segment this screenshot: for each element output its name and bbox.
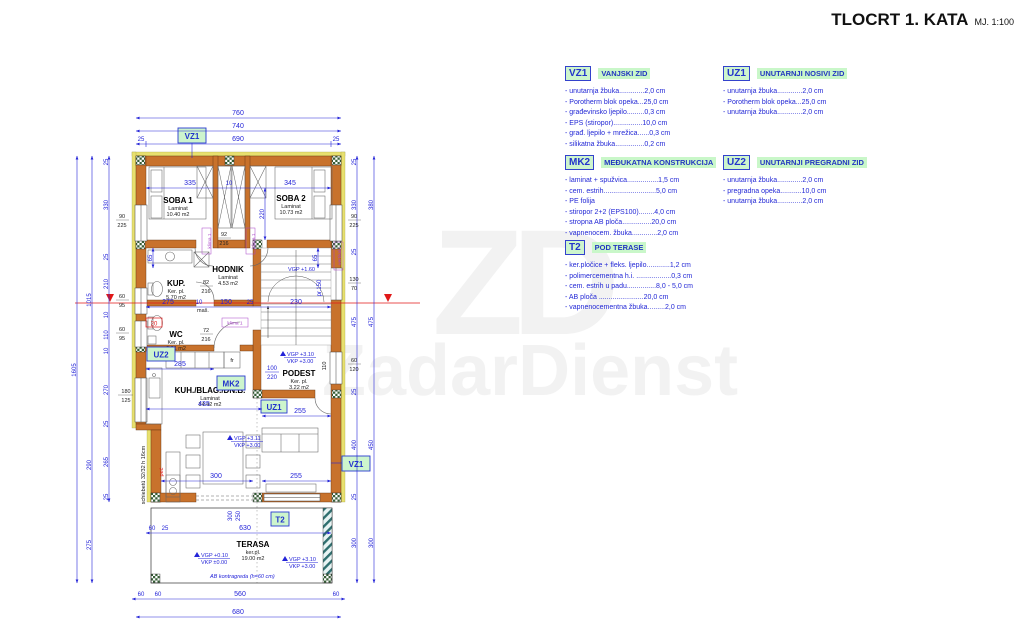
legend-line: - vapnenocem. žbuka.............2,0 cm — [565, 229, 717, 240]
legend-line: - PE folija — [565, 197, 717, 208]
legend-line: - cem. estrih u padu...............8,0 -… — [565, 282, 717, 293]
dim: 10 — [196, 300, 203, 306]
level-vkp300: VKP +3.00 — [289, 564, 315, 570]
dim: 25 — [352, 248, 358, 255]
window-dim: 60 — [119, 327, 125, 333]
room-name-kup: KUP. — [167, 279, 185, 288]
window-dim: 95 — [119, 336, 125, 342]
dim: 300 — [228, 510, 234, 521]
legend-title-uz1: UNUTARNJI NOSIVI ZID — [757, 68, 847, 79]
room-name-soba2: SOBA 2 — [276, 194, 306, 203]
room-name-terasa: TERASA — [237, 540, 270, 549]
level-vkp000: VKP ±0.00 — [201, 560, 227, 566]
legend-uz1: UZ1UNUTARNJI NOSIVI ZID - unutarnja žbuk… — [723, 66, 875, 119]
level-vkp300: VKP +3.00 — [287, 359, 313, 365]
legend-line: - polimercementna h.i. .................… — [565, 272, 717, 283]
dim: 10 — [226, 181, 233, 187]
legend-line: - građevinsko ljepilo.........0,3 cm — [565, 108, 717, 119]
dim: 60 — [138, 592, 145, 598]
dim: 300 — [369, 537, 375, 548]
dim: 275 — [87, 539, 93, 550]
dim: 220 — [267, 375, 278, 381]
level-vgp310: VGP +3.10 — [289, 557, 316, 563]
dim: 25 — [352, 493, 358, 500]
window-dim: 60 — [351, 358, 357, 364]
room-area: 10.73 m2 — [280, 210, 303, 216]
room-area: 4.53 m2 — [218, 281, 238, 287]
klima-label: klima 1 — [251, 233, 257, 249]
marker-uz1: UZ1 — [266, 403, 282, 412]
room-area: 3.22 m2 — [289, 385, 309, 391]
legend-line: - unutarnja žbuka.............2,0 cm — [723, 108, 875, 119]
dim: 330 — [104, 199, 110, 210]
dim: 60 — [333, 592, 340, 598]
legend-line: - cem. estrih...........................… — [565, 187, 717, 198]
dim: 335 — [184, 180, 196, 187]
legend-mk2: MK2MEĐUKATNA KONSTRUKCIJA - laminat + sp… — [565, 155, 717, 239]
legend-code-t2: T2 — [565, 240, 585, 255]
title-text: TLOCRT 1. KATA — [831, 10, 968, 29]
room-name-hodnik: HODNIK — [212, 265, 244, 274]
terrace-hatch — [323, 508, 332, 574]
dim: 290 — [87, 459, 93, 470]
window-dim: 125 — [121, 398, 130, 404]
window-dim: 90 — [351, 214, 357, 220]
legend-line: - unutarnja žbuka.............2,0 cm — [723, 176, 875, 187]
level-vgp311: VGP +3.11 — [234, 436, 261, 442]
dim: 25 — [247, 300, 254, 306]
stove-label: peć — [159, 467, 165, 476]
dim: 475 — [369, 316, 375, 327]
dim: 265 — [104, 456, 110, 467]
legend-line: - laminat + spužvica................1,5 … — [565, 176, 717, 187]
window-dim: 225 — [349, 223, 358, 229]
dim: 25 — [162, 526, 169, 532]
dim: 220 — [260, 208, 266, 219]
window-dim: 95 — [119, 303, 125, 309]
dim: 345 — [284, 180, 296, 187]
section-mark-label: 20 — [151, 322, 158, 328]
legend-vz1: VZ1VANJSKI ZID - unutarnja žbuka........… — [565, 66, 717, 150]
dim: 210 — [104, 278, 110, 289]
schiebe-note: schiebetü 32/32 h 16cm — [141, 445, 147, 504]
dim: 25 — [104, 158, 110, 165]
dim: 110 — [104, 330, 110, 340]
window-dim: 130 — [349, 277, 358, 283]
dim: 25 — [333, 137, 340, 143]
room-name-wc: WC — [169, 330, 183, 339]
legend-line: - unutarnja žbuka.............2,0 cm — [723, 87, 875, 98]
dim: 285 — [174, 361, 186, 368]
dim: 1605 — [72, 363, 78, 377]
window-dim: 90 — [119, 214, 125, 220]
marker-t2: T2 — [275, 516, 285, 525]
level-vgp010: VGP +0.10 — [201, 553, 228, 559]
dim: 250 — [236, 510, 242, 521]
dim: 25 — [352, 158, 358, 165]
dim: 255 — [290, 473, 302, 480]
dim: 10 — [104, 347, 110, 354]
door-dim: 92 — [221, 232, 227, 238]
title-scale: MJ. 1:100 — [974, 17, 1014, 27]
window-dim: 225 — [117, 223, 126, 229]
dim: 435 — [198, 401, 210, 408]
legend-line: - ker.pločice + fleks. ljepilo..........… — [565, 261, 717, 272]
dim: 300 — [352, 537, 358, 548]
klima-label: klima 1 — [207, 233, 213, 249]
dim: 25 — [138, 137, 145, 143]
washer-label: maš. — [197, 308, 209, 314]
legend-title-mk2: MEĐUKATNA KONSTRUKCIJA — [601, 157, 716, 168]
legend-t2: T2POD TERASE - ker.pločice + fleks. ljep… — [565, 240, 717, 314]
dim: 255 — [294, 408, 306, 415]
door-dim: 216 — [219, 241, 228, 247]
legend-title-uz2: UNUTARNJI PREGRADNI ZID — [757, 157, 867, 168]
dim: 560 — [234, 591, 246, 598]
legend-line: - unutarnja žbuka.............2,0 cm — [565, 87, 717, 98]
dim: 10 — [104, 311, 110, 318]
vertikala-label: vertikala — [337, 247, 343, 265]
dim: 60 — [155, 592, 162, 598]
dim: 25 — [104, 420, 110, 427]
dim: 65 — [313, 254, 319, 261]
level-vkp300: VKP +3.00 — [234, 443, 260, 449]
ab-kontragreda-note: AB kontragreda (h=60 cm) — [209, 574, 275, 580]
room-name-soba1: SOBA 1 — [163, 196, 193, 205]
dim: 450 — [369, 439, 375, 450]
door-dim: 72 — [203, 328, 209, 334]
window-dim: 120 — [349, 367, 358, 373]
dim: 300 — [210, 473, 222, 480]
dim: 25 — [104, 253, 110, 260]
dim: 380 — [369, 199, 375, 210]
window-dim: 60 — [119, 294, 125, 300]
dim: 150 — [220, 299, 232, 306]
dim: 1015 — [87, 293, 93, 307]
dim: 475 — [352, 316, 358, 327]
room-name-podest: PODEST — [283, 369, 316, 378]
drawing-title: TLOCRT 1. KATAMJ. 1:100 — [831, 10, 1014, 30]
legend-line: - pregradna opeka...........10,0 cm — [723, 187, 875, 198]
dim: 275 — [162, 299, 174, 306]
dim: 100 — [267, 366, 278, 372]
parapet-note: pr.150 — [317, 279, 323, 296]
window-dim: 70 — [351, 286, 357, 292]
legend-line: - građ. ljepilo + mrežica......0,3 cm — [565, 129, 717, 140]
legend-line: - vapnenocementna žbuka.........2,0 cm — [565, 303, 717, 314]
legend-line: - Porotherm blok opeka...25,0 cm — [723, 98, 875, 109]
dim: 65 — [148, 254, 154, 261]
room-area: 10.40 m2 — [167, 212, 190, 218]
door-dim: 82 — [203, 280, 209, 286]
legend-line: - AB ploča .......................20,0 c… — [565, 293, 717, 304]
dim: 330 — [352, 199, 358, 210]
marker-mk2: MK2 — [223, 380, 240, 389]
dim: 60 — [149, 526, 156, 532]
legend-code-vz1: VZ1 — [565, 66, 591, 81]
legend-code-uz1: UZ1 — [723, 66, 750, 81]
dim: 25 — [104, 493, 110, 500]
legend-line: - stiropor 2+2 (EPS100)........4,0 cm — [565, 208, 717, 219]
legend-title-t2: POD TERASE — [592, 242, 647, 253]
dim: 740 — [232, 123, 244, 130]
dim: 270 — [104, 384, 110, 395]
window-dim: 180 — [121, 389, 130, 395]
dim: 400 — [352, 439, 358, 450]
dim: 630 — [239, 525, 251, 532]
legend-line: - stropna AB ploča...............20,0 cm — [565, 218, 717, 229]
klima-label: klima 1 — [227, 321, 243, 327]
room-area: 19.00 m2 — [242, 556, 265, 562]
drawing-sheet: ZD ZadarDienst TLOCRT 1. KATAMJ. 1:100 V… — [0, 0, 1024, 628]
legend-title-vz1: VANJSKI ZID — [598, 68, 650, 79]
door-dim: 216 — [201, 289, 210, 295]
marker-uz2: UZ2 — [153, 351, 169, 360]
dim: 690 — [232, 136, 244, 143]
legend-line: - EPS (stiropor)...............10,0 cm — [565, 119, 717, 130]
legend-code-uz2: UZ2 — [723, 155, 750, 170]
level-vgp160: VGP +1.60 — [288, 267, 315, 273]
dim: 25 — [352, 388, 358, 395]
dim: 760 — [232, 110, 244, 117]
fridge-label: fr — [230, 358, 234, 364]
legend-uz2: UZ2UNUTARNJI PREGRADNI ZID - unutarnja ž… — [723, 155, 875, 208]
marker-vz1-right: VZ1 — [349, 460, 364, 469]
legend-code-mk2: MK2 — [565, 155, 594, 170]
legend-line: - silikatna žbuka...............0,2 cm — [565, 140, 717, 151]
legend-line: - Porotherm blok opeka...25,0 cm — [565, 98, 717, 109]
window-dim: 110 — [322, 362, 328, 371]
marker-vz1-top: VZ1 — [185, 132, 200, 141]
legend-line: - unutarnja žbuka.............2,0 cm — [723, 197, 875, 208]
level-vgp310: VGP +3.10 — [287, 352, 314, 358]
door-dim: 216 — [201, 337, 210, 343]
dim: 230 — [290, 299, 302, 306]
dim: 680 — [232, 609, 244, 616]
